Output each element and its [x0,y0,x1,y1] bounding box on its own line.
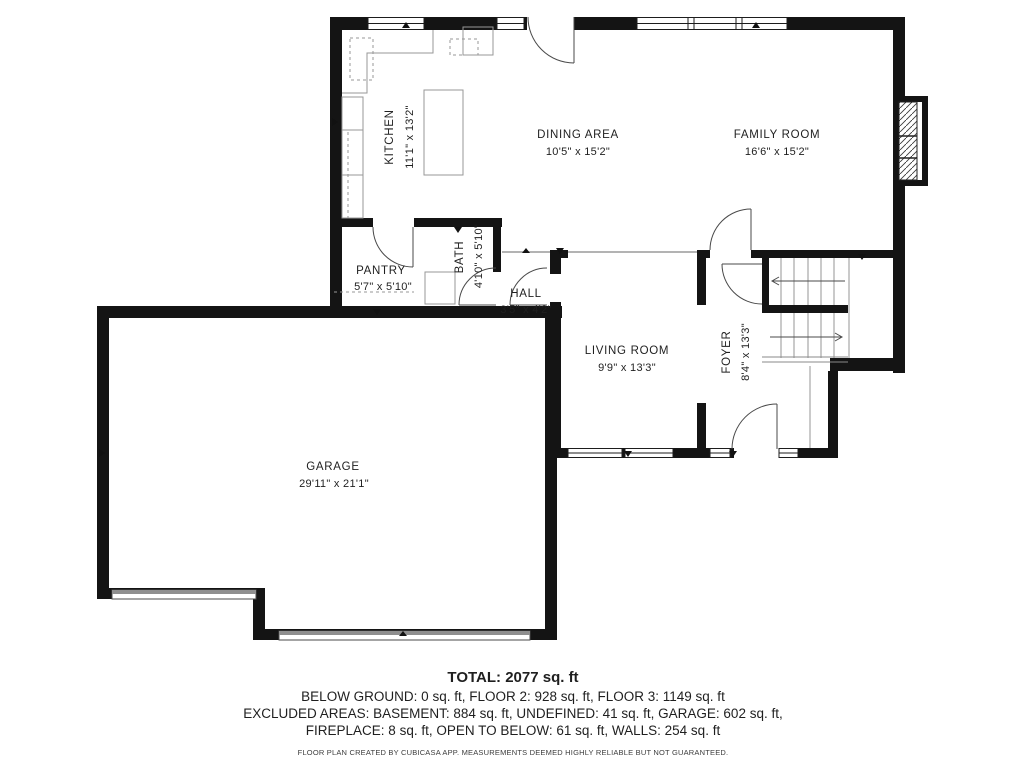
room-label-family: FAMILY ROOM [734,129,821,141]
room-dims-bath: 4'10" x 5'10" [473,224,485,288]
fireplace [893,96,928,186]
room-dims-hall: 3'5" x 4'2" [500,304,551,316]
family-room-door [710,209,751,250]
room-label-garage: GARAGE [306,461,359,473]
garage-doors [112,590,530,640]
floor-plan-canvas: KITCHEN 11'1" x 13'2" DINING AREA 10'5" … [0,0,1024,768]
foyer-closet-door [722,264,762,304]
front-door [732,404,777,449]
windows [368,18,798,458]
bath-vanity [425,272,455,304]
door-openings [373,17,779,458]
room-dims-pantry: 5'7" x 5'10" [354,281,412,293]
room-dims-garage: 29'11" x 21'1" [299,478,369,490]
kitchen-fixtures [342,27,493,218]
area-summary: TOTAL: 2077 sq. ft BELOW GROUND: 0 sq. f… [243,669,782,757]
room-dims-foyer: 8'4" x 13'3" [740,323,752,381]
room-dims-living: 9'9" x 13'3" [598,362,656,374]
summary-excluded-2: FIREPLACE: 8 sq. ft, OPEN TO BELOW: 61 s… [306,723,721,738]
room-label-hall: HALL [510,288,542,300]
room-dims-family: 16'6" x 15'2" [745,146,809,158]
room-label-pantry: PANTRY [356,265,406,277]
room-label-foyer: FOYER [721,330,733,373]
kitchen-island [424,90,463,175]
room-label-living: LIVING ROOM [585,345,669,357]
summary-disclaimer: FLOOR PLAN CREATED BY CUBICASA APP. MEAS… [298,748,729,757]
room-dims-dining: 10'5" x 15'2" [546,146,610,158]
room-label-kitchen: KITCHEN [384,109,396,164]
pantry-door [373,227,413,267]
summary-excluded-1: EXCLUDED AREAS: BASEMENT: 884 sq. ft, UN… [243,706,782,721]
summary-total: TOTAL: 2077 sq. ft [447,669,578,686]
summary-floors: BELOW GROUND: 0 sq. ft, FLOOR 2: 928 sq.… [301,689,725,704]
room-label-dining: DINING AREA [537,129,619,141]
room-dims-kitchen: 11'1" x 13'2" [404,105,416,168]
bath-fixtures [425,272,455,304]
walls [97,17,905,640]
room-label-bath: BATH [454,241,466,274]
doors [373,17,777,449]
floor-plan-page: KITCHEN 11'1" x 13'2" DINING AREA 10'5" … [0,0,1024,768]
